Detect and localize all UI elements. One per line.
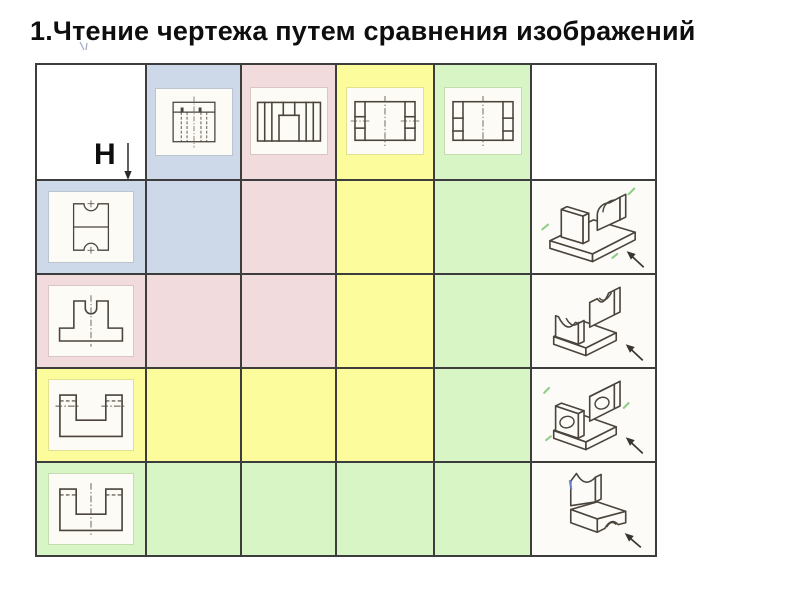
front-view-drawing-2	[54, 291, 128, 351]
h-projection-arrow-icon	[124, 143, 131, 180]
check-mark-icon	[542, 225, 548, 230]
check-mark-icon	[544, 388, 549, 393]
cell-r1-c3-answer	[241, 180, 336, 274]
top-view-drawing-3	[349, 91, 421, 151]
cell-header-empty	[531, 64, 656, 180]
exercise-row-1	[36, 180, 656, 274]
check-mark-icon	[624, 403, 629, 408]
cell-front-view-3	[36, 368, 146, 462]
view-direction-arrow-icon	[625, 533, 641, 547]
front-view-drawing-1	[62, 196, 120, 258]
view-direction-arrow-icon	[626, 437, 643, 453]
cell-r3-c3-answer	[241, 368, 336, 462]
check-mark-icon	[629, 189, 635, 195]
cell-r4-c2-answer	[146, 462, 241, 556]
cell-r3-c5-answer	[434, 368, 531, 462]
drawing-card	[445, 88, 521, 154]
view-direction-arrow-icon	[627, 251, 644, 267]
drawing-card	[156, 89, 232, 155]
cell-isometric-3	[531, 368, 656, 462]
cell-isometric-1	[531, 180, 656, 274]
cell-header-top-view-4	[434, 64, 531, 180]
check-mark-icon	[546, 436, 551, 440]
cell-r2-c4-answer	[336, 274, 434, 368]
cell-r2-c2-answer	[146, 274, 241, 368]
drawing-card	[49, 380, 133, 450]
isometric-drawing-3	[533, 370, 654, 460]
top-view-drawing-2	[253, 91, 325, 151]
projection-direction-arrows	[37, 122, 143, 180]
cell-r4-c3-answer	[241, 462, 336, 556]
projection-matching-table: H V	[35, 63, 657, 557]
cell-isometric-4	[531, 462, 656, 556]
cell-r4-c4-answer	[336, 462, 434, 556]
isometric-drawing-4	[533, 464, 654, 554]
exercise-row-2	[36, 274, 656, 368]
view-direction-arrow-icon	[626, 344, 643, 360]
drawing-card	[49, 286, 133, 356]
isometric-drawing-2	[533, 276, 654, 366]
isometric-drawing-1	[533, 182, 654, 272]
cell-r3-c2-answer	[146, 368, 241, 462]
cell-header-top-view-3	[336, 64, 434, 180]
cell-r3-c4-answer	[336, 368, 434, 462]
exercise-row-4	[36, 462, 656, 556]
cell-header-top-view-2	[241, 64, 336, 180]
header-row: H V	[36, 64, 656, 180]
drawing-card	[251, 88, 327, 154]
cell-front-view-1	[36, 180, 146, 274]
cell-r2-c3-answer	[241, 274, 336, 368]
slide-title: 1.Чтение чертежа путем сравнения изображ…	[30, 16, 696, 47]
cell-r1-c2-answer	[146, 180, 241, 274]
cell-r1-c5-answer	[434, 180, 531, 274]
blue-mark-icon	[570, 481, 571, 489]
drawing-card	[49, 474, 133, 544]
drawing-card	[49, 192, 133, 262]
cell-r2-c5-answer	[434, 274, 531, 368]
top-view-drawing-1	[165, 93, 223, 151]
front-view-drawing-3	[54, 386, 128, 444]
front-view-drawing-4	[54, 480, 128, 538]
exercise-row-3	[36, 368, 656, 462]
cell-corner-planes: H V	[36, 64, 146, 180]
check-mark-icon	[612, 254, 617, 258]
drawing-card	[347, 88, 423, 154]
cell-front-view-2	[36, 274, 146, 368]
cell-r4-c5-answer	[434, 462, 531, 556]
top-view-drawing-4	[447, 91, 519, 151]
cell-header-top-view-1	[146, 64, 241, 180]
cell-front-view-4	[36, 462, 146, 556]
cell-isometric-2	[531, 274, 656, 368]
cell-r1-c4-answer	[336, 180, 434, 274]
